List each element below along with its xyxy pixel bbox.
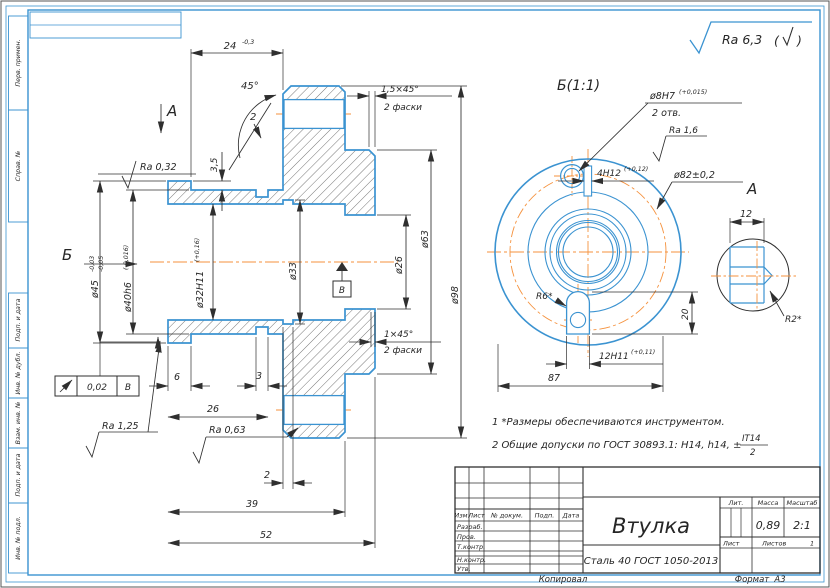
dim-24: 24 — [224, 41, 237, 52]
strip-label: Инв. № дубл. — [14, 351, 22, 394]
dim-dia8: ø8H7 — [649, 91, 675, 102]
view-b-dimensions: ø8H7 (+0,015) 2 отв. Ra 1,6 4H12 (+0,12)… — [498, 89, 757, 392]
dim-slot12-tol: (+0,11) — [631, 349, 655, 356]
technical-notes: 1 *Размеры обеспечиваются инструментом. … — [492, 416, 768, 458]
format-value: А3 — [773, 575, 785, 585]
dim-24-tol: -0,3 — [242, 39, 254, 46]
drawing-sheet: Перв. примен. Справ. № Подп. и дата Инв.… — [0, 0, 830, 588]
dim-52: 52 — [260, 530, 272, 541]
dim-r6: R6* — [536, 292, 553, 302]
main-section-view: ø45 -0,03 -0,05 ø40h6 (-0,016) ø32H11 (+… — [55, 39, 467, 548]
dim-dia40-tol: (-0,016) — [123, 245, 130, 270]
roughness-check-icon — [122, 161, 136, 188]
ra-063: Ra 0,63 — [209, 425, 246, 436]
col-list: Лист — [467, 512, 485, 520]
scale-label: Масштаб — [787, 499, 818, 507]
dim-dia40: ø40h6 — [123, 282, 134, 313]
mass-value: 0,89 — [756, 519, 781, 532]
dim-26: 26 — [207, 404, 219, 415]
general-roughness-value: Ra 6,3 — [722, 32, 762, 47]
lit-label: Лит. — [728, 499, 744, 507]
roughness-check-icon — [193, 437, 206, 463]
dim-45deg: 45° — [241, 81, 259, 92]
dim-slot4-tol: (+0,12) — [624, 166, 648, 173]
part-name: Втулка — [612, 514, 690, 538]
dim-20: 20 — [681, 308, 691, 320]
dim-dia32: ø32H11 — [195, 271, 206, 309]
dim-3: 3 — [256, 371, 262, 382]
datum-flag: В — [333, 262, 351, 297]
dim-dia26: ø26 — [394, 256, 405, 275]
roughness-check-icon — [653, 136, 666, 161]
dim-dia8-note: 2 отв. — [652, 108, 681, 119]
dim-ch15-note: 2 фаски — [384, 103, 422, 113]
title-block: Изм. Лист № докум. Подп. Дата Разраб. Пр… — [454, 467, 820, 585]
dim-dia45: ø45 — [90, 280, 101, 299]
view-a-label: А — [746, 180, 757, 198]
scale-value: 2:1 — [793, 519, 811, 532]
sheet-label: Лист — [722, 540, 740, 548]
dim-dia33: ø33 — [288, 262, 299, 281]
dim-chamfer2: 2 — [250, 112, 256, 123]
dim-dia63: ø63 — [420, 230, 431, 249]
main-dimensions: ø45 -0,03 -0,05 ø40h6 (-0,016) ø32H11 (+… — [55, 39, 467, 548]
ra-125: Ra 1,25 — [102, 421, 139, 432]
dim-slot4: 4H12 — [597, 169, 621, 179]
dim-r2: R2* — [785, 315, 802, 325]
dim-35: 3,5 — [210, 157, 220, 172]
view-a-detail: 12 R2* — [711, 209, 802, 325]
datum-label: В — [339, 286, 345, 296]
sheets-label: Листов — [761, 540, 786, 548]
part-material: Сталь 40 ГОСТ 1050-2013 — [584, 556, 719, 567]
strip-label: Инв. № подл. — [15, 516, 22, 559]
small-check-icon — [783, 27, 793, 45]
roughness-check-icon — [86, 432, 99, 457]
runout-value: 0,02 — [87, 383, 107, 393]
paren-close: ) — [796, 33, 802, 48]
row-utv: Утв. — [457, 565, 471, 573]
note-frac-num: IT14 — [742, 434, 761, 444]
dim-39: 39 — [246, 499, 258, 510]
col-date: Дата — [562, 512, 580, 520]
runout-tolerance-frame: 0,02 В — [55, 337, 158, 396]
dim-2: 2 — [264, 470, 270, 481]
ra-16: Ra 1,6 — [669, 126, 698, 136]
bolt-hole-upper — [284, 100, 344, 129]
note-frac-den: 2 — [750, 448, 755, 458]
dim-slot12: 12H11 — [599, 352, 629, 362]
strip-label: Подп. и дата — [15, 298, 22, 341]
col-sign: Подп. — [535, 512, 555, 520]
slot-4h12 — [584, 166, 592, 196]
sheets-value: 1 — [810, 540, 814, 548]
view-b: Б(1:1) ø8H7 — [487, 78, 757, 392]
dim-6: 6 — [174, 372, 180, 383]
left-column-labels: Перв. примен. Справ. № Подп. и дата Инв.… — [14, 39, 22, 559]
view-arrow-b-label: Б — [62, 246, 72, 264]
dim-87: 87 — [548, 373, 560, 384]
dim-dia82: ø82±0,2 — [673, 170, 715, 181]
kopiroval-label: Копировал — [539, 575, 588, 585]
view-arrow-a-label: А — [166, 102, 177, 120]
row-prov: Пров. — [457, 533, 476, 541]
view-b-title: Б(1:1) — [557, 78, 600, 94]
dim-dia32-tol: (+0,16) — [194, 238, 201, 262]
dim-ch1-note: 2 фаски — [384, 346, 422, 356]
row-razrab: Разраб. — [457, 523, 483, 531]
view-a-boundary — [717, 239, 789, 311]
ra-032: Ra 0,32 — [140, 162, 177, 173]
dim-ch15: 1,5×45° — [381, 85, 419, 95]
dim-dia98: ø98 — [450, 286, 461, 305]
format-label: Формат — [735, 575, 771, 585]
strip-label: Подп. и дата — [15, 453, 22, 496]
note-1: 1 *Размеры обеспечиваются инструментом. — [492, 416, 725, 428]
dim-12: 12 — [740, 209, 752, 220]
strip-label: Взам. инв. № — [15, 401, 22, 444]
view-a-centerlines — [711, 241, 796, 309]
row-tkontr: Т.контр. — [457, 543, 485, 551]
row-nkontr: Н.контр. — [457, 556, 486, 564]
drawing-page: Перв. примен. Справ. № Подп. и дата Инв.… — [0, 0, 830, 588]
view-a-contours — [730, 247, 772, 303]
strip-label: Перв. примен. — [15, 39, 22, 86]
mass-label: Масса — [758, 499, 779, 507]
col-doc: № докум. — [490, 512, 523, 520]
runout-symbol-icon — [60, 380, 72, 392]
dim-ch1: 1×45° — [384, 330, 413, 340]
paren-open: ( — [774, 33, 780, 48]
strip-label: Справ. № — [15, 150, 22, 181]
note-2: 2 Общие допуски по ГОСТ 30893.1: H14, h1… — [492, 439, 741, 451]
runout-datum-ref: В — [125, 383, 131, 393]
dim-dia8-tol: (+0,015) — [679, 89, 707, 96]
general-roughness: Ra 6,3 ( ) — [690, 22, 812, 53]
